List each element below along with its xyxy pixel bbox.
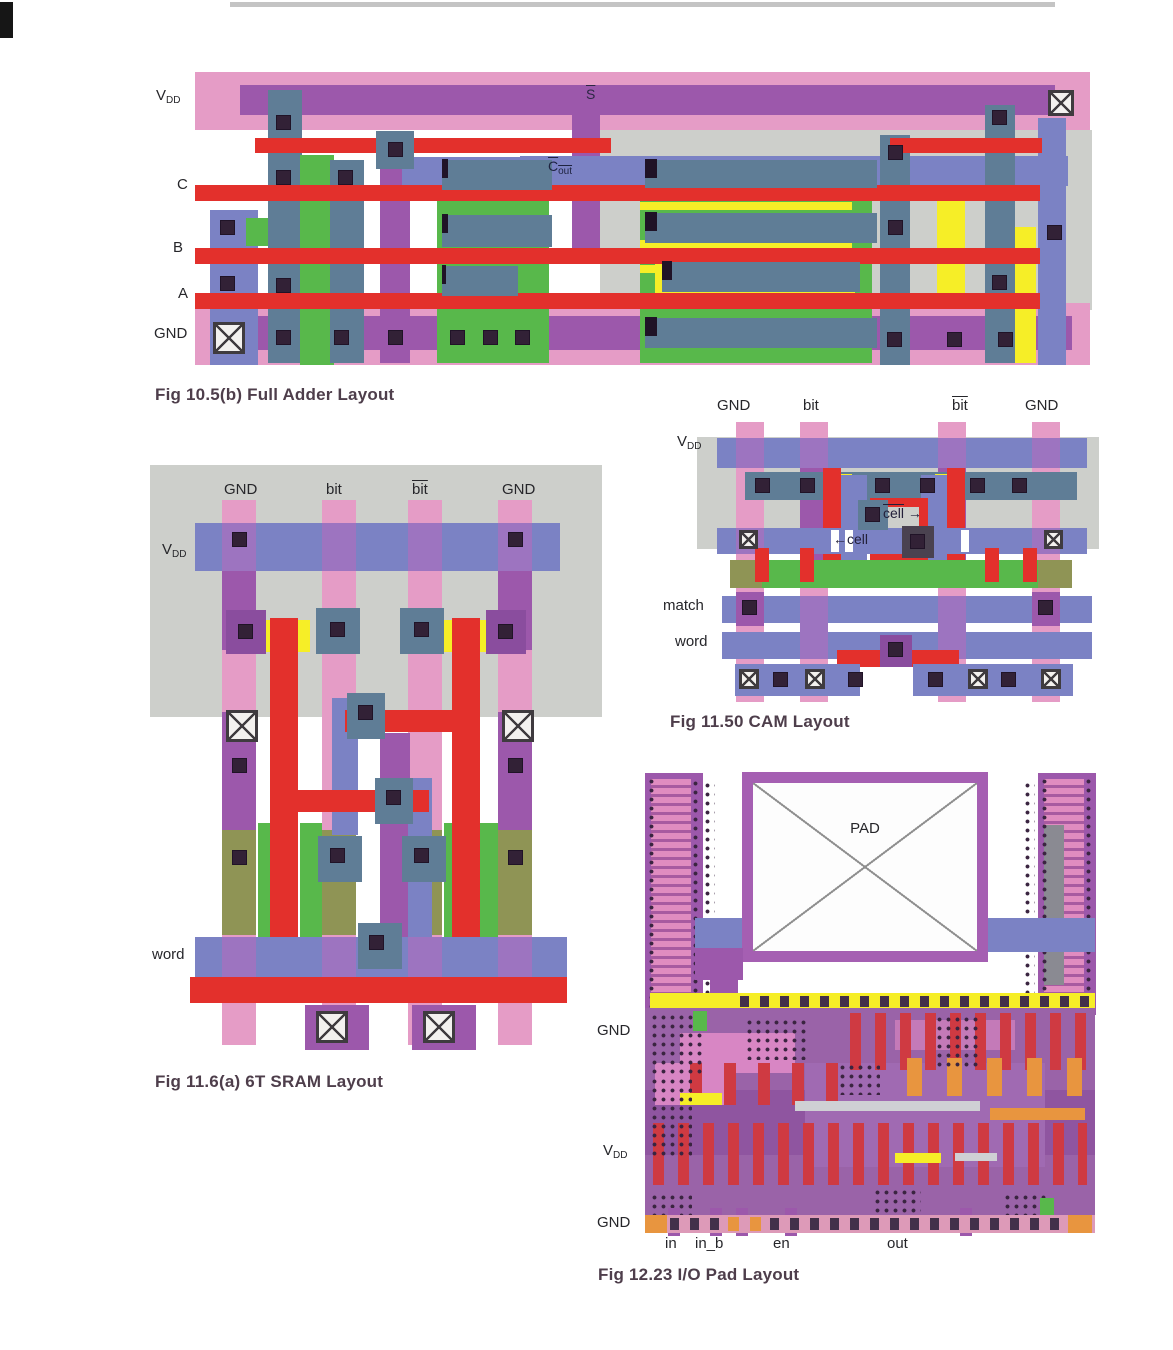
via-x-marker xyxy=(968,669,988,689)
metal-segment xyxy=(222,650,256,712)
input-a-label: A xyxy=(178,286,188,303)
poly-wire xyxy=(255,138,611,153)
contact xyxy=(276,278,291,293)
contact xyxy=(865,507,880,522)
gnd-label: GND xyxy=(717,398,750,415)
contact xyxy=(334,330,349,345)
layer-crossing xyxy=(938,438,966,468)
diffusion-band xyxy=(730,560,1072,588)
via-x-marker xyxy=(1044,530,1063,549)
scan-artifact xyxy=(0,2,13,38)
contact-row xyxy=(645,160,877,188)
transistor-column xyxy=(268,90,302,363)
word-poly-wire xyxy=(190,977,567,1003)
vdd-label: VDD xyxy=(156,88,180,106)
full-adder-figure: VDD C B A GND S Cout Fig 10.5(b) Full Ad… xyxy=(150,60,1095,405)
contact xyxy=(232,758,247,773)
poly-column xyxy=(380,733,410,937)
poly-gate-line xyxy=(452,618,480,938)
input-b-label: B xyxy=(173,240,183,257)
contact xyxy=(887,332,902,347)
contact-dots xyxy=(1023,781,1035,1011)
metal-bar xyxy=(990,1108,1085,1120)
cellbar-label: cell → xyxy=(883,506,922,521)
bit-label: bit xyxy=(803,398,819,415)
contact xyxy=(992,275,1007,290)
layer-crossing xyxy=(1032,438,1060,468)
contact xyxy=(920,478,935,493)
contact-grid xyxy=(650,1077,692,1157)
via-x-marker xyxy=(805,669,825,689)
contact xyxy=(414,622,429,637)
contact xyxy=(386,790,401,805)
transistor-fingers xyxy=(653,1123,1087,1185)
metal-stub xyxy=(710,948,738,996)
contact xyxy=(755,478,770,493)
layer-crossing xyxy=(408,523,442,571)
cout-bar-label: Cout xyxy=(548,159,572,177)
poly-stub xyxy=(1023,548,1037,582)
figure-caption: Fig 12.23 I/O Pad Layout xyxy=(598,1265,799,1285)
cell-label: ←cell xyxy=(833,532,868,547)
layer-crossing xyxy=(322,937,356,977)
contact xyxy=(414,848,429,863)
contact xyxy=(515,330,530,345)
inb-label: in_b xyxy=(695,1236,723,1253)
contact-row xyxy=(442,160,552,190)
contact xyxy=(498,624,513,639)
diffusion-overlap xyxy=(1038,560,1072,588)
contact-row xyxy=(442,266,518,296)
layer-crossing xyxy=(498,523,532,571)
vdd-label: VDD xyxy=(603,1143,627,1161)
contact xyxy=(773,672,788,687)
contact-row xyxy=(662,262,860,292)
gnd-label: GND xyxy=(1025,398,1058,415)
contact xyxy=(992,110,1007,125)
input-b-wire xyxy=(195,248,1040,264)
contact-dots xyxy=(1040,777,1050,1009)
iopad-figure: PAD xyxy=(595,765,1115,1300)
contact xyxy=(888,145,903,160)
contact xyxy=(388,142,403,157)
contact xyxy=(742,600,757,615)
contact-row xyxy=(645,213,877,243)
contact-row xyxy=(645,318,877,348)
contact xyxy=(232,850,247,865)
vdd-label: VDD xyxy=(162,542,186,560)
contact xyxy=(220,276,235,291)
contact xyxy=(970,478,985,493)
vdd-metal-bar xyxy=(240,85,1055,115)
contact-grid xyxy=(745,1018,807,1060)
layer-crossing xyxy=(800,438,828,468)
contact xyxy=(358,705,373,720)
input-c-wire xyxy=(195,185,1040,201)
contact xyxy=(848,672,863,687)
via-x-marker xyxy=(226,710,258,742)
bitbar-label: bit xyxy=(412,482,428,499)
gnd-label: GND xyxy=(224,482,257,499)
contact xyxy=(483,330,498,345)
metal-line xyxy=(795,1101,980,1111)
contact xyxy=(388,330,403,345)
contact xyxy=(450,330,465,345)
metal-tab xyxy=(645,1215,667,1233)
layer-crossing xyxy=(800,596,828,659)
contact xyxy=(928,672,943,687)
metal-fingers xyxy=(907,1058,1087,1096)
gnd-label: GND xyxy=(597,1215,630,1232)
via-x-marker xyxy=(316,1011,348,1043)
via-x-marker xyxy=(1041,669,1061,689)
match-label: match xyxy=(663,598,704,615)
scan-artifact xyxy=(230,2,1055,7)
contact xyxy=(947,332,962,347)
contact xyxy=(276,170,291,185)
contact xyxy=(655,317,657,336)
contact xyxy=(232,532,247,547)
bit-label: bit xyxy=(326,482,342,499)
contact xyxy=(446,214,448,233)
word-label: word xyxy=(675,634,708,651)
contact xyxy=(508,758,523,773)
diffusion-overlap xyxy=(498,830,532,935)
diffusion-overlap xyxy=(222,830,256,935)
bitbar-label: bit xyxy=(952,398,968,415)
poly-wire xyxy=(890,138,1042,153)
input-c-label: C xyxy=(177,177,188,194)
via-x-marker xyxy=(502,710,534,742)
contact-grid xyxy=(873,1188,921,1214)
metal-line xyxy=(955,1153,997,1161)
poly-stub xyxy=(985,548,999,582)
contact xyxy=(330,848,345,863)
contact xyxy=(369,935,384,950)
contact xyxy=(276,330,291,345)
contact xyxy=(338,170,353,185)
contact xyxy=(670,261,672,280)
contact xyxy=(888,642,903,657)
sram-figure: GND bit bit GND VDD word Fig 11.6(a) 6T … xyxy=(150,460,620,1110)
contact xyxy=(888,220,903,235)
figure-caption: Fig 11.50 CAM Layout xyxy=(670,712,850,732)
select-bit xyxy=(895,1153,941,1163)
via-x-marker xyxy=(1048,90,1074,116)
gnd-label: GND xyxy=(154,326,187,343)
transistor-strip xyxy=(745,472,1077,500)
figure-caption: Fig 11.6(a) 6T SRAM Layout xyxy=(155,1072,383,1092)
metal-column xyxy=(1038,118,1066,365)
via-x-marker xyxy=(739,669,759,689)
contact xyxy=(220,220,235,235)
contact xyxy=(910,534,925,549)
figure-caption: Fig 10.5(b) Full Adder Layout xyxy=(155,385,394,405)
pad-label: PAD xyxy=(753,821,977,838)
via-x-marker xyxy=(423,1011,455,1043)
contact xyxy=(998,332,1013,347)
contact xyxy=(276,115,291,130)
gnd-label: GND xyxy=(597,1023,630,1040)
contact xyxy=(330,622,345,637)
contact xyxy=(655,159,657,178)
out-label: out xyxy=(887,1236,908,1253)
contact-grid xyxy=(838,1063,880,1095)
contact xyxy=(800,478,815,493)
textbook-page: VDD C B A GND S Cout Fig 10.5(b) Full Ad… xyxy=(0,0,1173,1350)
metal-tab xyxy=(728,1217,739,1231)
diffusion-bit xyxy=(693,1011,707,1031)
layer-crossing xyxy=(322,523,356,571)
layer-crossing xyxy=(408,937,442,977)
gnd-label: GND xyxy=(502,482,535,499)
poly-gate-line xyxy=(270,618,298,938)
select-strip xyxy=(640,202,852,210)
contact xyxy=(508,850,523,865)
layer-crossing xyxy=(736,438,764,468)
contact xyxy=(238,624,253,639)
contact-row xyxy=(442,215,552,247)
well-background xyxy=(150,465,602,717)
via-x-marker xyxy=(739,530,758,549)
via-x-marker xyxy=(213,322,245,354)
poly-stub xyxy=(755,548,769,582)
layer-crossing xyxy=(222,523,256,571)
in-label: in xyxy=(665,1236,677,1253)
contact xyxy=(1012,478,1027,493)
slot xyxy=(961,530,969,552)
contact-dots xyxy=(1084,777,1094,1009)
contact xyxy=(1038,600,1053,615)
poly-stub xyxy=(800,548,814,582)
bond-pad: PAD xyxy=(742,772,988,962)
word-label: word xyxy=(152,947,185,964)
metal-tab xyxy=(750,1217,761,1231)
vdd-label: VDD xyxy=(677,434,701,452)
contact xyxy=(1047,225,1062,240)
metal-tab xyxy=(1068,1215,1092,1233)
s-bar-label: S xyxy=(586,87,595,102)
contact xyxy=(444,265,446,284)
contact xyxy=(446,159,448,178)
layer-crossing xyxy=(222,937,256,977)
select-column xyxy=(937,185,965,303)
input-a-wire xyxy=(195,293,1040,309)
contact-dashes xyxy=(740,996,1090,1007)
contact xyxy=(655,212,657,231)
metal-segment xyxy=(498,650,532,712)
cam-figure: GND bit bit GND VDD cell → ←cell match w… xyxy=(655,390,1120,755)
en-label: en xyxy=(773,1236,790,1253)
contact xyxy=(1001,672,1016,687)
contact xyxy=(508,532,523,547)
layer-crossing xyxy=(498,937,532,977)
contact-grid xyxy=(935,1015,979,1070)
contact xyxy=(875,478,890,493)
